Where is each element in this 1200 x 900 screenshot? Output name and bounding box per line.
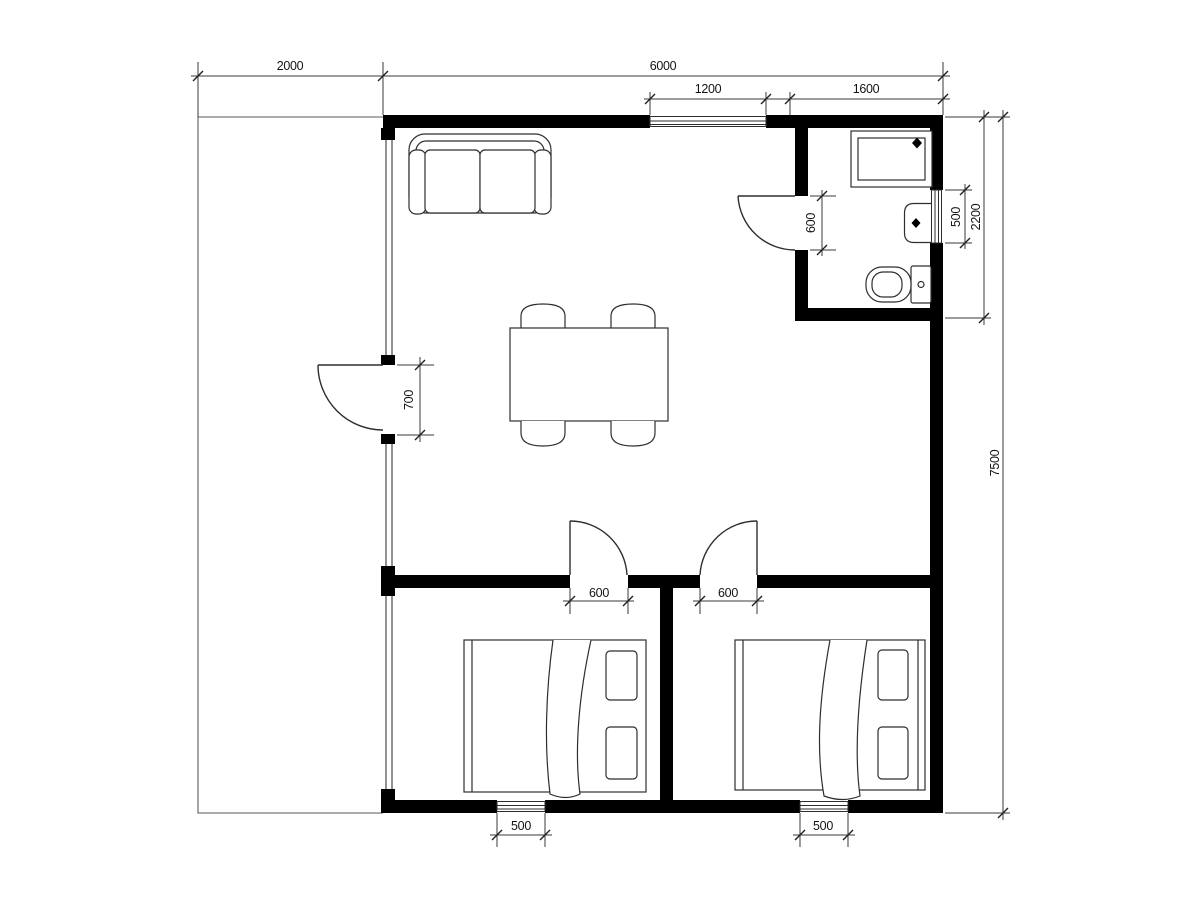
porch-outline	[198, 117, 385, 813]
dim-bed2-door: 600	[693, 586, 764, 614]
chair-bottom-right	[611, 421, 655, 446]
dining-table	[510, 328, 668, 421]
chair-bottom-left	[521, 421, 565, 446]
bathroom-door	[738, 196, 795, 250]
dim-label-bath-depth: 2200	[969, 203, 983, 230]
bed2-pillow-bottom	[878, 727, 908, 779]
dim-bed1-door: 600	[563, 586, 634, 614]
sofa-armrest-left	[409, 150, 426, 214]
dim-bed2-window: 500	[793, 813, 855, 847]
dims-top: 2000 6000 1200 1600	[191, 59, 950, 117]
window-right	[932, 190, 942, 243]
chair-top-left	[521, 304, 565, 330]
chair-top-right	[611, 304, 655, 330]
bedroom2-door	[700, 521, 757, 575]
floor-plan-drawing: 2000 6000 1200 1600 500 2200 7500 700 60…	[0, 0, 1200, 900]
shower-tray	[851, 131, 932, 187]
bed1-pillow-top	[606, 651, 637, 700]
sofa-cushion-right	[480, 150, 535, 213]
floor-plan-canvas: 2000 6000 1200 1600 500 2200 7500 700 60…	[0, 0, 1200, 900]
dim-label-bed2-door: 600	[718, 586, 738, 600]
dim-label-bath-width: 1600	[853, 82, 880, 96]
dim-entry-door: 700	[397, 357, 434, 442]
bathroom-door-swing	[738, 196, 795, 250]
entry-door	[318, 365, 383, 430]
bed1-pillow-bottom	[606, 727, 637, 779]
dim-label-bath-door: 600	[804, 213, 818, 233]
dim-label-entry-door: 700	[402, 390, 416, 410]
left-wall-junction-blocks	[381, 128, 395, 813]
window-bedroom1	[497, 802, 545, 812]
dim-label-right-window: 500	[949, 207, 963, 227]
dim-label-top-window: 1200	[695, 82, 722, 96]
toilet-flush-icon	[918, 282, 924, 288]
bathroom-fixtures	[851, 131, 932, 303]
dim-label-bed1-window: 500	[511, 819, 531, 833]
dim-label-main-width: 6000	[650, 59, 677, 73]
entry-door-swing	[318, 365, 383, 430]
left-wall-thin-lines	[386, 140, 392, 789]
sofa-armrest-right	[534, 150, 551, 214]
dims-right: 500 2200 7500	[945, 110, 1010, 820]
dim-label-porch-width: 2000	[277, 59, 304, 73]
sofa	[409, 134, 551, 214]
bedroom1-door-swing	[570, 521, 627, 575]
window-top	[650, 117, 766, 127]
bed-1	[464, 640, 646, 798]
dining-set	[510, 304, 668, 446]
bedroom2-door-swing	[700, 521, 757, 575]
dims-top-lines	[191, 62, 950, 117]
dim-bath-door: 600	[804, 190, 836, 256]
dim-label-bed1-door: 600	[589, 586, 609, 600]
dim-label-bed2-window: 500	[813, 819, 833, 833]
bed2-pillow-top	[878, 650, 908, 700]
bedroom1-door	[570, 521, 627, 575]
dim-bed1-window: 500	[490, 813, 552, 847]
sofa-cushion-left	[425, 150, 480, 213]
window-bedroom2	[800, 802, 848, 812]
dim-label-house-depth: 7500	[988, 449, 1002, 476]
bed-2	[735, 640, 925, 800]
